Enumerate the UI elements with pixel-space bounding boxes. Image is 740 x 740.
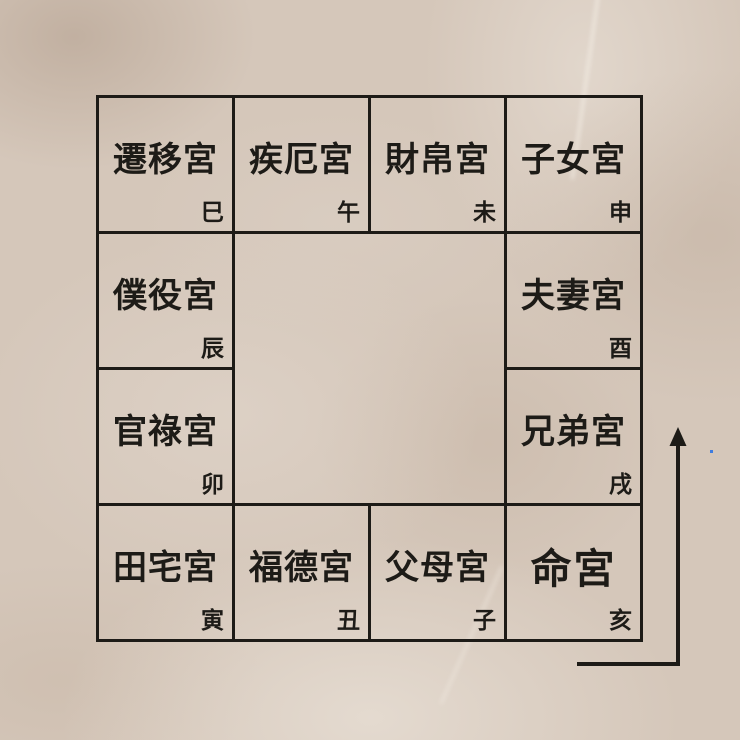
branch-label: 戌 xyxy=(609,473,632,496)
marble-background: 遷移宮 巳 疾厄宮 午 財帛宮 未 子女宮 申 僕役宮 辰 夫妻宮 酉 官祿宮 … xyxy=(0,0,740,740)
palace-name: 福德宮 xyxy=(249,540,354,589)
blue-dot xyxy=(710,450,713,453)
branch-label: 酉 xyxy=(609,337,632,360)
palace-cell-wu: 疾厄宮 午 xyxy=(232,95,371,234)
branch-label: 未 xyxy=(473,201,496,224)
branch-label: 亥 xyxy=(609,609,632,632)
palace-name: 疾厄宮 xyxy=(249,132,354,181)
palace-name: 夫妻宮 xyxy=(521,268,626,317)
palace-cell-xu: 兄弟宮 戌 xyxy=(504,367,643,506)
branch-label: 巳 xyxy=(201,201,224,224)
palace-name: 命宮 xyxy=(531,535,617,595)
branch-label: 辰 xyxy=(201,337,224,360)
palace-cell-mao: 官祿宮 卯 xyxy=(96,367,235,506)
palace-cell-hai: 命宮 亥 xyxy=(504,503,643,642)
palace-name: 財帛宮 xyxy=(385,132,490,181)
palace-name: 子女宮 xyxy=(521,132,626,181)
branch-label: 午 xyxy=(337,201,360,224)
palace-name: 僕役宮 xyxy=(113,268,218,317)
palace-cell-zi: 父母宮 子 xyxy=(368,503,507,642)
palace-cell-chou: 福德宮 丑 xyxy=(232,503,371,642)
branch-label: 卯 xyxy=(201,473,224,496)
branch-label: 丑 xyxy=(337,609,360,632)
palace-cell-shen: 子女宮 申 xyxy=(504,95,643,234)
branch-label: 申 xyxy=(609,201,632,224)
palace-grid: 遷移宮 巳 疾厄宮 午 財帛宮 未 子女宮 申 僕役宮 辰 夫妻宮 酉 官祿宮 … xyxy=(96,95,643,642)
palace-name: 遷移宮 xyxy=(113,132,218,181)
palace-cell-si: 遷移宮 巳 xyxy=(96,95,235,234)
palace-name: 父母宮 xyxy=(385,540,490,589)
branch-label: 子 xyxy=(473,609,496,632)
palace-name: 官祿宮 xyxy=(113,404,218,453)
palace-cell-wei: 財帛宮 未 xyxy=(368,95,507,234)
palace-cell-yin: 田宅宮 寅 xyxy=(96,503,235,642)
palace-name: 田宅宮 xyxy=(113,540,218,589)
palace-cell-you: 夫妻宮 酉 xyxy=(504,231,643,370)
palace-cell-chen: 僕役宮 辰 xyxy=(96,231,235,370)
palace-name: 兄弟宮 xyxy=(521,404,626,453)
branch-label: 寅 xyxy=(201,609,224,632)
